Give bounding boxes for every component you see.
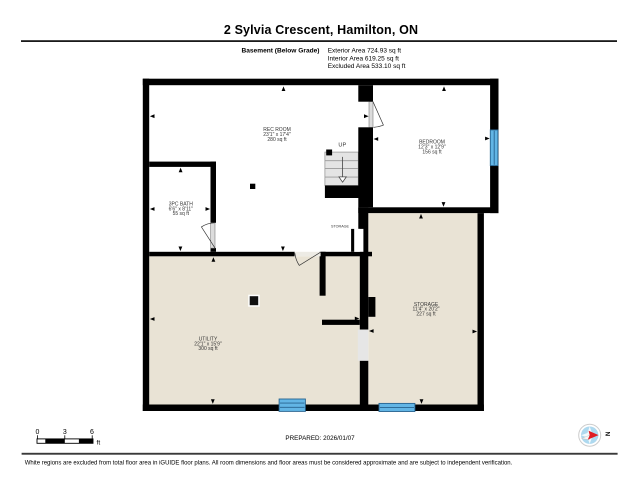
svg-text:Excluded Area 533.10 sq ft: Excluded Area 533.10 sq ft bbox=[328, 63, 406, 70]
svg-text:Interior Area 619.25 sq ft: Interior Area 619.25 sq ft bbox=[328, 55, 399, 62]
svg-text:2 Sylvia Crescent, Hamilton, O: 2 Sylvia Crescent, Hamilton, ON bbox=[224, 23, 418, 37]
svg-text:Exterior Area 724.93 sq ft: Exterior Area 724.93 sq ft bbox=[328, 48, 402, 55]
svg-text:White regions are excluded fro: White regions are excluded from total fl… bbox=[25, 461, 513, 467]
svg-text:ft: ft bbox=[97, 439, 101, 446]
svg-text:PREPARED: 2026/01/07: PREPARED: 2026/01/07 bbox=[285, 435, 355, 442]
svg-text:UP: UP bbox=[338, 143, 346, 149]
svg-text:N: N bbox=[604, 432, 611, 437]
svg-text:Basement (Below Grade): Basement (Below Grade) bbox=[241, 48, 319, 55]
svg-text:0: 0 bbox=[36, 429, 40, 436]
svg-text:156 sq ft: 156 sq ft bbox=[422, 149, 442, 155]
svg-text:6: 6 bbox=[90, 429, 94, 436]
svg-text:300 sq ft: 300 sq ft bbox=[198, 346, 218, 352]
svg-text:3: 3 bbox=[63, 429, 67, 436]
svg-text:227 sq ft: 227 sq ft bbox=[416, 312, 436, 318]
svg-text:280 sq ft: 280 sq ft bbox=[267, 137, 287, 143]
svg-text:STORAGE: STORAGE bbox=[331, 224, 350, 228]
svg-text:55 sq ft: 55 sq ft bbox=[173, 211, 190, 217]
